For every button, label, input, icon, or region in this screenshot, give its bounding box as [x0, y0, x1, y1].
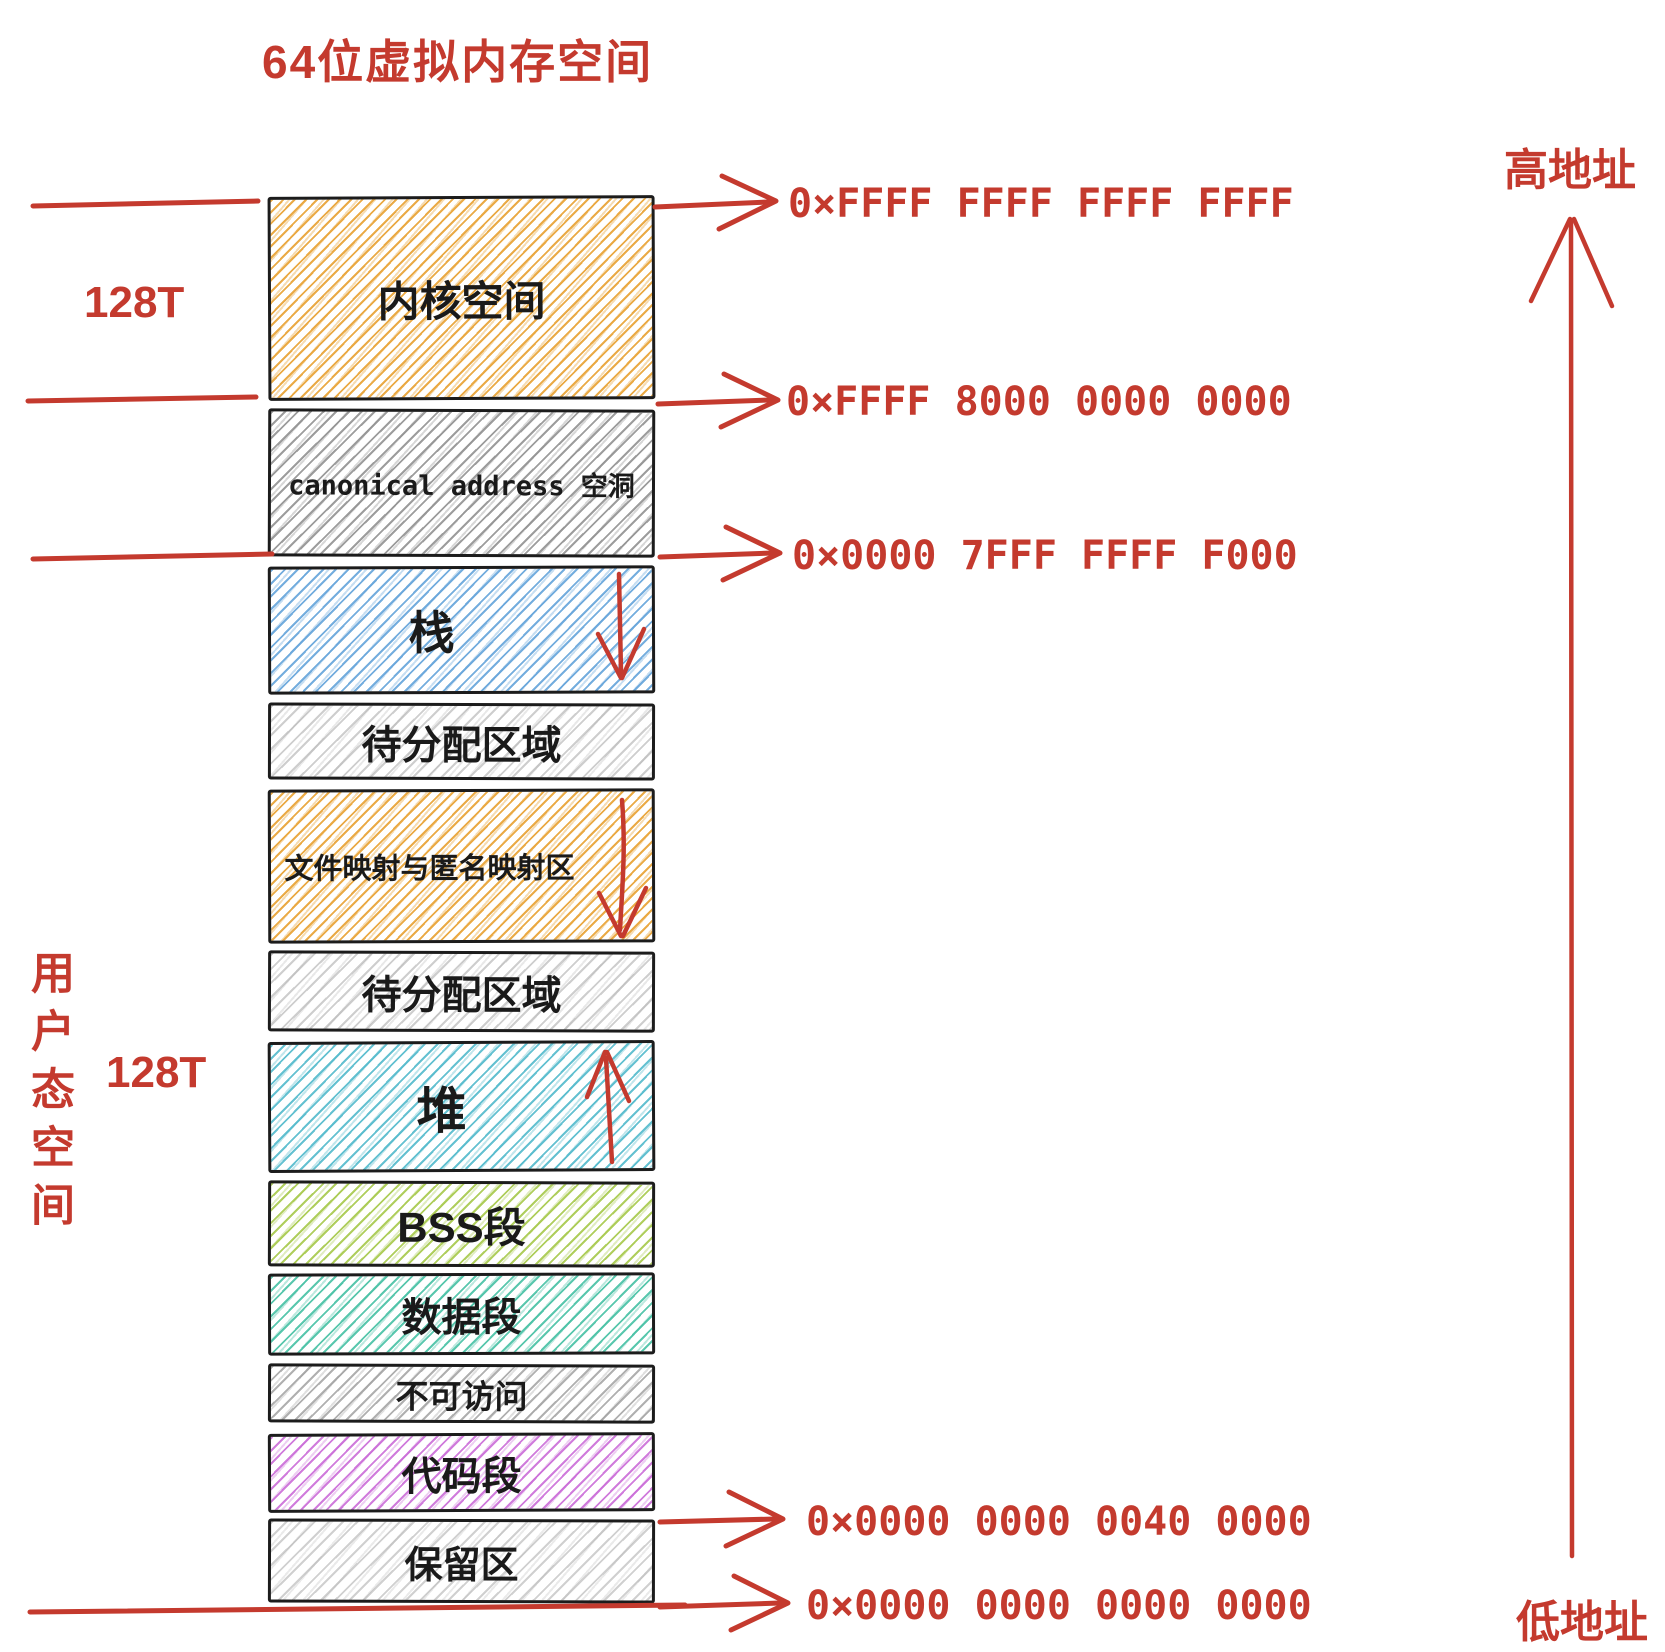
address-user-top: 0×0000 7FFF FFFF F000 — [792, 533, 1298, 579]
region-data-segment-label: 数据段 — [401, 1285, 521, 1343]
high-address-label: 高地址 — [1504, 134, 1636, 198]
region-canonical-hole-label: canonical address 空洞 — [288, 463, 635, 503]
address-zero: 0×0000 0000 0000 0000 — [806, 1583, 1312, 1629]
user-size-label: 128T — [106, 1048, 206, 1098]
kernel-bottom-tick — [28, 397, 256, 401]
region-bss: BSS段 — [268, 1180, 655, 1267]
region-stack-label: 栈 — [408, 597, 514, 663]
region-unallocated-lower: 待分配区域 — [268, 950, 655, 1032]
user-space-label: 用户态空间 — [16, 950, 80, 1240]
red-annotations — [0, 0, 1665, 1652]
address-code-base: 0×0000 0000 0040 0000 — [806, 1499, 1312, 1545]
address-kernel-base: 0×FFFF 8000 0000 0000 — [786, 379, 1292, 425]
region-mmap-label: 文件映射与匿名映射区 — [284, 844, 638, 887]
region-code-segment-label: 代码段 — [401, 1443, 521, 1502]
region-heap-label: 堆 — [416, 1070, 506, 1142]
region-reserved: 保留区 — [268, 1518, 655, 1603]
arrow-address-zero — [660, 1576, 788, 1630]
arrow-address-code-base — [660, 1492, 783, 1546]
kernel-size-label: 128T — [84, 278, 184, 328]
region-canonical-hole: canonical address 空洞 — [268, 408, 656, 557]
region-kernel-label: 内核空间 — [377, 267, 545, 329]
user-top-tick — [33, 554, 272, 559]
region-bss-label: BSS段 — [397, 1193, 526, 1254]
region-unallocated-upper-label: 待分配区域 — [361, 712, 561, 771]
address-top: 0×FFFF FFFF FFFF FFFF — [788, 181, 1294, 227]
region-no-access: 不可访问 — [268, 1363, 655, 1423]
region-unallocated-lower-label: 待分配区域 — [361, 962, 561, 1021]
virtual-memory-diagram: 64位虚拟内存空间 128T 128T 用户态空间 高地址 低地址 内核空间 c… — [0, 0, 1665, 1652]
region-heap: 堆 — [268, 1040, 656, 1173]
low-address-label: 低地址 — [1516, 1586, 1648, 1650]
region-data-segment: 数据段 — [268, 1272, 655, 1355]
region-mmap: 文件映射与匿名映射区 — [268, 788, 656, 943]
address-axis-arrow — [1531, 219, 1612, 1556]
region-no-access-label: 不可访问 — [395, 1369, 527, 1417]
arrow-address-user-top — [660, 527, 780, 580]
region-kernel: 内核空间 — [268, 195, 656, 401]
diagram-title: 64位虚拟内存空间 — [262, 26, 653, 92]
kernel-top-tick — [33, 201, 258, 206]
region-unallocated-upper: 待分配区域 — [268, 702, 655, 780]
arrow-address-top — [655, 176, 776, 229]
bottom-baseline — [30, 1605, 685, 1612]
region-code-segment: 代码段 — [268, 1432, 655, 1513]
region-reserved-label: 保留区 — [404, 1533, 518, 1588]
arrow-address-kernel-base — [658, 374, 778, 427]
region-stack: 栈 — [268, 565, 655, 694]
